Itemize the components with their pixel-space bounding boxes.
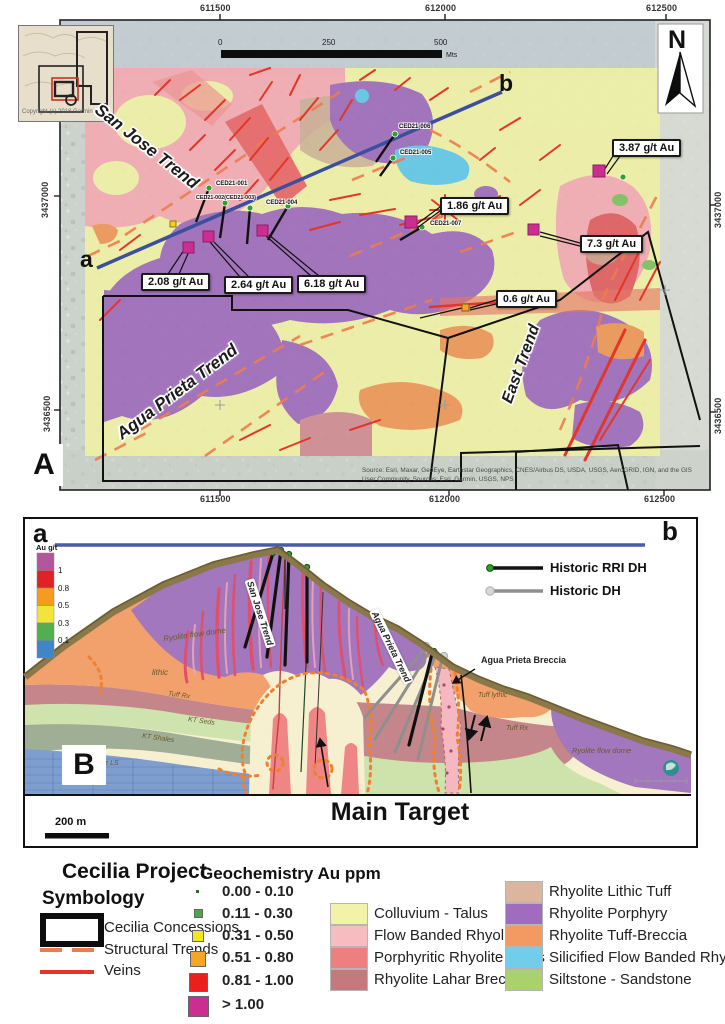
geology-swatch xyxy=(505,947,543,969)
coord-bottom-1: 611500 xyxy=(200,494,231,504)
north-label: N xyxy=(668,26,686,55)
assay-callout: 2.08 g/t Au xyxy=(141,273,210,291)
assay-callout: 7.3 g/t Au xyxy=(580,235,643,253)
drillhole-label: CED21-002(CED21-003) xyxy=(196,195,256,201)
assay-callout: 6.18 g/t Au xyxy=(297,275,366,293)
coord-right-2: 3436500 xyxy=(713,398,723,434)
assay-callout: 0.6 g/t Au xyxy=(496,290,557,308)
au-scale-tick: 0.8 xyxy=(58,584,69,593)
geology-unit-name: Rhyolite Porphyry xyxy=(549,905,667,922)
geology-swatch xyxy=(330,925,368,947)
unit-label-tuff-bx-right: Tuff Rx xyxy=(506,725,528,732)
au-scale-tick: 0.3 xyxy=(58,619,69,628)
geochem-title: Geochemistry Au ppm xyxy=(200,864,381,884)
coord-top-2: 612000 xyxy=(425,3,456,13)
geology-unit-name: Rhyolite Lahar Breccia xyxy=(374,971,525,988)
dh-legend-symbols xyxy=(486,565,543,596)
geochem-range: 0.31 - 0.50 xyxy=(222,927,294,944)
geochem-range: 0.11 - 0.30 xyxy=(222,905,293,922)
geology-swatch xyxy=(505,925,543,947)
geology-swatch xyxy=(330,969,368,991)
structural-trend-symbol xyxy=(40,948,62,952)
geochem-range: > 1.00 xyxy=(222,996,264,1013)
geology-unit-name: Silicified Flow Banded Rhyolite xyxy=(549,949,725,966)
section-scalebar-label: 200 m xyxy=(55,816,86,828)
structural-trend-symbol xyxy=(72,948,94,952)
coord-left-1: 3437000 xyxy=(40,182,50,218)
geology-unit-name: Rhyolite Lithic Tuff xyxy=(549,883,671,900)
geochem-range: 0.00 - 0.10 xyxy=(222,883,294,900)
map-source-text: Source: Esri, Maxar, GeoEye, Earthstar G… xyxy=(362,467,706,484)
section-point-a: a xyxy=(80,248,93,271)
geology-swatch xyxy=(505,881,543,903)
dh-legend-rri: Historic RRI DH xyxy=(550,560,647,575)
scalebar-zero: 0 xyxy=(218,38,222,47)
geochem-symbol xyxy=(196,890,199,893)
au-scale-tick: 1 xyxy=(58,566,62,575)
coord-bottom-3: 612500 xyxy=(644,494,675,504)
geochem-symbol xyxy=(188,996,209,1017)
symbology-label: Cecilia Concessions xyxy=(104,919,239,936)
inset-copyright: Copyright (c) 2018 Garmin xyxy=(22,109,93,115)
geology-swatch xyxy=(330,903,368,925)
vein-symbol xyxy=(40,970,94,974)
concession-symbol xyxy=(40,913,104,947)
symbology-title: Symbology xyxy=(42,888,144,910)
project-title: Cecilia Project xyxy=(62,860,207,884)
assay-callout: 1.86 g/t Au xyxy=(440,197,509,215)
geology-unit-name: Flow Banded Rhyolite xyxy=(374,927,520,944)
geochem-symbol xyxy=(194,909,203,918)
geochem-range: 0.51 - 0.80 xyxy=(222,949,294,966)
section-point-b: b xyxy=(499,72,513,95)
drillhole-label: CED21-007 xyxy=(430,221,461,227)
drillhole-label: CED21-001 xyxy=(216,181,247,187)
main-target-label: Main Target xyxy=(255,798,545,827)
au-scale-tick: 0.1 xyxy=(58,636,69,645)
unit-label-tuff-lythic: Tuff lythic xyxy=(478,692,507,699)
drillhole-label: CED21-004 xyxy=(266,200,297,206)
geology-unit-name: Siltstone - Sandstone xyxy=(549,971,692,988)
drillhole-label: CED21-005 xyxy=(400,150,431,156)
geochem-symbol xyxy=(192,930,204,942)
panel-a-label: A xyxy=(25,444,63,486)
coord-right-1: 3437000 xyxy=(713,192,723,228)
scalebar-mid: 250 xyxy=(322,38,335,47)
au-scale-title: Au g/t xyxy=(36,543,57,552)
symbology-label: Veins xyxy=(104,962,141,979)
geology-unit-name: Rhyolite Tuff-Breccia xyxy=(549,927,687,944)
drillhole-label: CED21-006 xyxy=(399,124,430,130)
au-scale-tick: 0.5 xyxy=(58,601,69,610)
unit-label-flow-dome-right: Ryolite flow dome xyxy=(572,746,631,755)
coord-top-1: 611500 xyxy=(200,3,231,13)
assay-callout: 2.64 g/t Au xyxy=(224,276,293,294)
geology-swatch xyxy=(505,969,543,991)
coord-top-3: 612500 xyxy=(646,3,677,13)
section-b-point-b: b xyxy=(662,518,678,544)
geology-unit-name: Colluvium - Talus xyxy=(374,905,488,922)
geology-swatch xyxy=(505,903,543,925)
geochem-symbol xyxy=(189,973,208,992)
section-scalebar xyxy=(45,833,109,839)
scalebar-unit: Mts xyxy=(446,52,457,59)
panel-b-label: B xyxy=(62,745,106,785)
map-scalebar xyxy=(221,50,442,58)
coord-bottom-2: 612000 xyxy=(429,494,460,504)
coord-left-2: 3436500 xyxy=(42,396,52,432)
assay-callout: 3.87 g/t Au xyxy=(612,139,681,157)
geology-swatch xyxy=(330,947,368,969)
au-grade-scale xyxy=(37,553,54,658)
scalebar-max: 500 xyxy=(434,38,447,47)
annotation-agua-prieta-breccia: Agua Prieta Breccia xyxy=(481,655,566,665)
figure-root: Copyright (c) 2018 Garmin 611500 612000 … xyxy=(0,0,725,1024)
geochem-symbol xyxy=(190,951,206,967)
unit-label-lithic: lithic xyxy=(152,668,168,677)
geochem-range: 0.81 - 1.00 xyxy=(222,972,294,989)
dh-legend-historic: Historic DH xyxy=(550,583,621,598)
